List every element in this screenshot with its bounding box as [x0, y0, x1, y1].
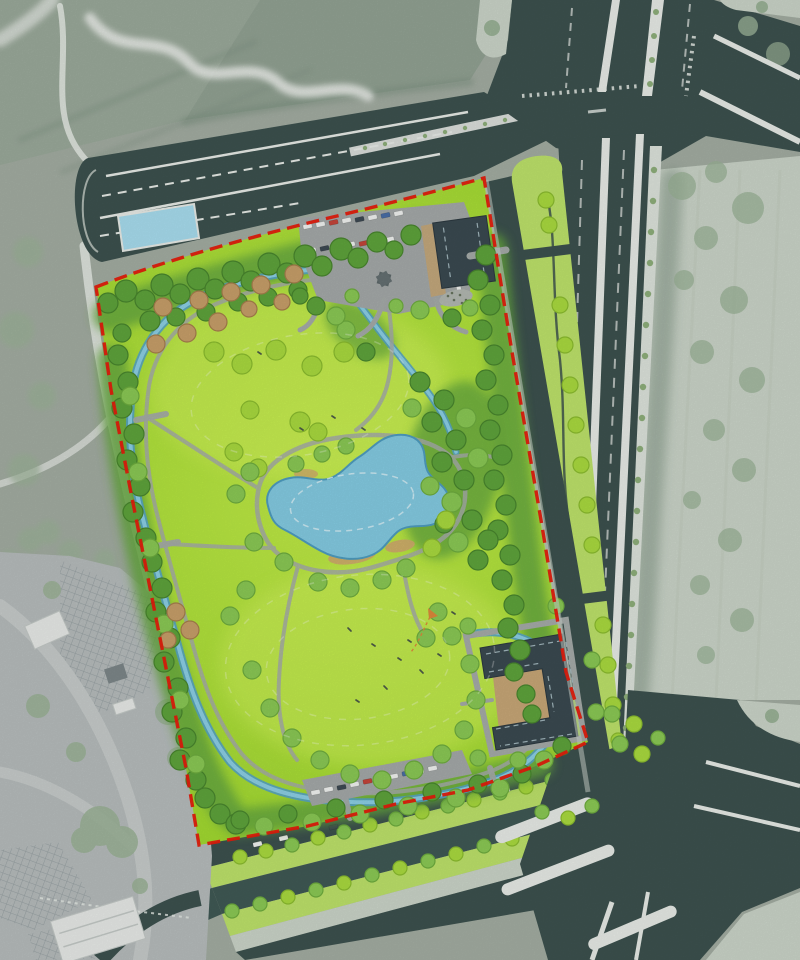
site-plan	[0, 0, 800, 960]
photo-grain-overlay	[0, 0, 800, 960]
site-plan-image	[0, 0, 800, 960]
